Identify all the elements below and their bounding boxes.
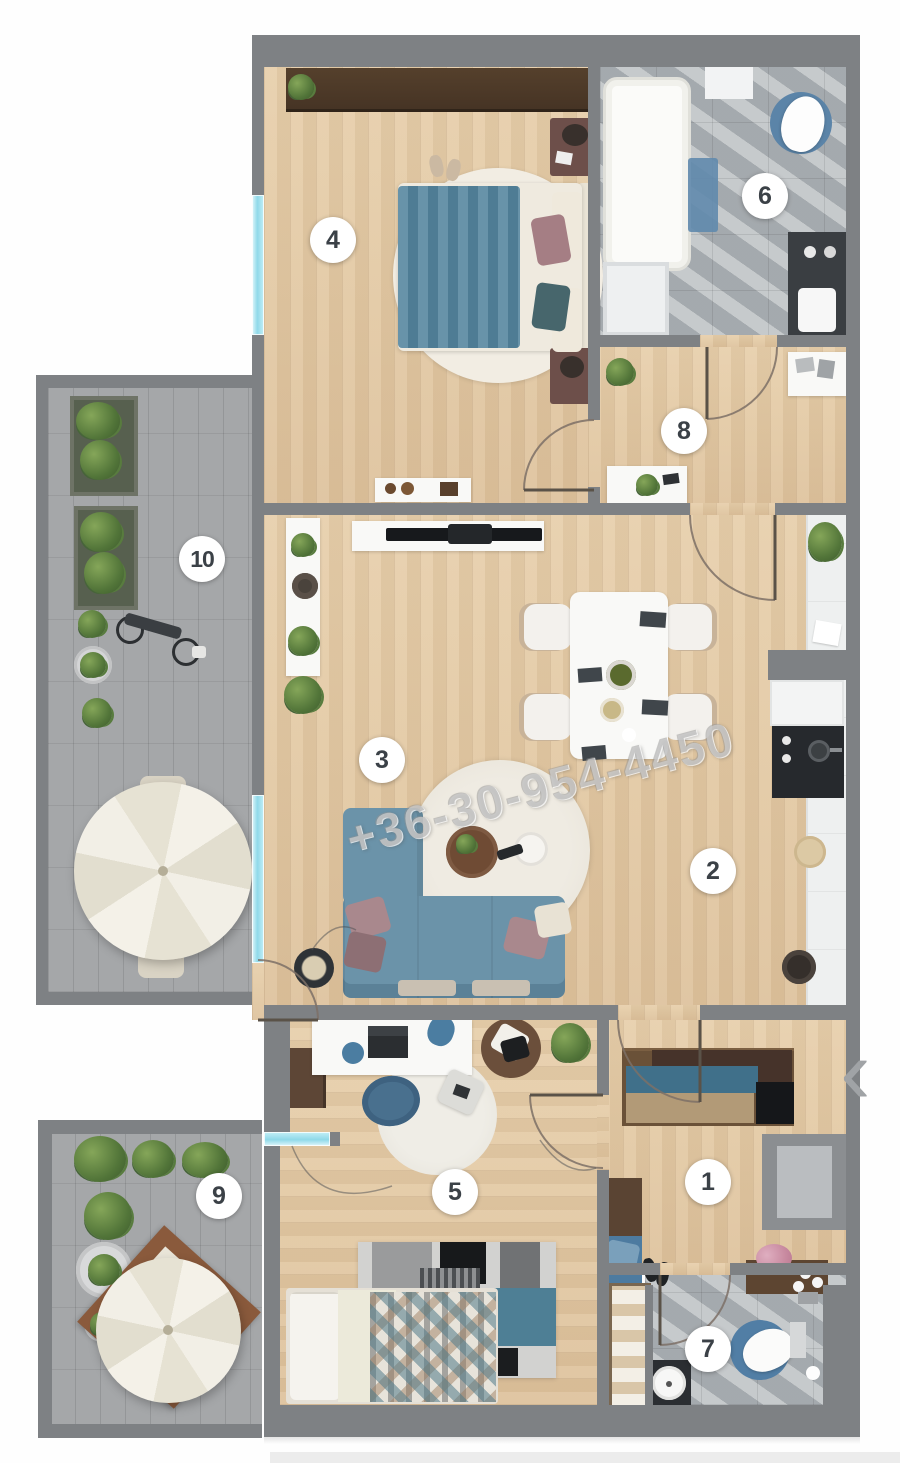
- wall: [36, 375, 48, 1005]
- decor-item: [385, 483, 396, 494]
- nightstand-book: [555, 151, 573, 166]
- placemat: [642, 699, 669, 715]
- decor-item: [798, 1292, 818, 1304]
- wall: [588, 487, 600, 503]
- window: [252, 795, 264, 963]
- room-badge-5: 5: [432, 1169, 478, 1215]
- vanity-item: [804, 246, 816, 258]
- placemat: [578, 667, 603, 683]
- wall: [330, 1132, 340, 1146]
- desk-lamp: [342, 1042, 364, 1064]
- patch-rug-block: [500, 1242, 540, 1288]
- entry-wardrobe-teal: [626, 1066, 758, 1093]
- vanity-item: [824, 246, 836, 258]
- plant-icon: [84, 552, 124, 594]
- room-badge-9: 9: [196, 1173, 242, 1219]
- cookbook: [812, 620, 841, 646]
- pot: [808, 740, 830, 762]
- plant-icon: [291, 533, 315, 557]
- knob: [782, 736, 791, 745]
- room-badge-3: 3: [359, 737, 405, 783]
- dining-chair: [664, 604, 712, 650]
- bicycle-basket: [192, 646, 206, 658]
- plant-icon: [288, 626, 318, 656]
- toilet-paper: [806, 1366, 820, 1380]
- umbrella-pole: [158, 866, 168, 876]
- wall: [597, 1020, 609, 1405]
- sofa-headrest: [398, 980, 456, 996]
- sofa-pillow: [343, 930, 388, 973]
- wall-shadow: [264, 1437, 860, 1444]
- knob: [782, 754, 791, 763]
- wall: [38, 1120, 262, 1134]
- wardrobe: [286, 68, 592, 112]
- plant-icon: [288, 74, 314, 100]
- soundbar: [448, 524, 492, 544]
- decor-bowl: [782, 950, 816, 984]
- plant-icon: [606, 358, 634, 386]
- plant-icon: [551, 1023, 589, 1063]
- floor-plan-canvas: 1 2 3 4 5 6 7 8 9 10 +36-30-954-4450 ‹: [0, 0, 900, 1463]
- fruit-bowl: [794, 836, 826, 868]
- nightstand-lamp: [562, 124, 588, 146]
- sofa-headrest: [472, 980, 530, 996]
- entry-wardrobe-shelf: [626, 1093, 754, 1123]
- wall: [36, 375, 252, 388]
- umbrella-pole: [163, 1325, 173, 1335]
- bathtub: [603, 77, 691, 271]
- picture-frame: [795, 357, 815, 373]
- sink: [798, 288, 836, 332]
- sofa-throw: [533, 901, 572, 938]
- plant-icon: [636, 474, 658, 496]
- wall: [38, 1424, 262, 1438]
- bed-pillow: [290, 1292, 340, 1400]
- laptop: [368, 1026, 408, 1058]
- plate: [793, 1281, 804, 1292]
- room-badge-8: 8: [661, 408, 707, 454]
- page-edge: [270, 1452, 900, 1463]
- door-opening: [700, 335, 777, 347]
- triangle-blanket: [370, 1292, 496, 1402]
- salad-bowl: [606, 660, 636, 690]
- plant-pot: [82, 698, 112, 728]
- dining-chair: [524, 604, 572, 650]
- wall: [264, 1146, 280, 1405]
- wall: [645, 1285, 653, 1405]
- decor-item: [401, 482, 414, 495]
- room-badge-4: 4: [310, 217, 356, 263]
- room-badge-10: 10: [179, 536, 225, 582]
- plant-icon: [80, 652, 106, 678]
- wall: [588, 67, 600, 420]
- chevron-left-icon[interactable]: ‹: [840, 1026, 871, 1118]
- wall: [823, 1285, 846, 1407]
- floor-lamp: [294, 948, 334, 988]
- pot-handle: [830, 748, 842, 752]
- plant-icon: [80, 440, 120, 480]
- door-opening: [618, 1005, 700, 1020]
- wall: [846, 35, 860, 1020]
- plate: [812, 1277, 823, 1288]
- bed-blanket: [398, 186, 520, 348]
- kitchen-wall-notch: [768, 650, 846, 680]
- plant-icon: [132, 1140, 174, 1178]
- room-badge-1: 1: [685, 1159, 731, 1205]
- dining-chair: [524, 694, 572, 740]
- nightstand-lamp: [560, 356, 584, 378]
- plant-icon: [74, 1136, 126, 1182]
- door-opening: [252, 958, 264, 1020]
- entry-closet-inner: [777, 1146, 832, 1218]
- decor-item: [440, 482, 458, 496]
- wall: [252, 35, 860, 67]
- wall: [264, 1405, 860, 1437]
- wall: [252, 1005, 846, 1020]
- entry-wardrobe-black: [756, 1082, 794, 1124]
- toilet-tank: [790, 1322, 806, 1358]
- wall: [252, 35, 264, 195]
- plant-icon: [80, 512, 122, 552]
- bath-cabinet: [603, 262, 669, 336]
- washer: [705, 67, 753, 99]
- plate: [600, 698, 624, 722]
- bath-mat: [688, 158, 718, 232]
- drain: [666, 1381, 672, 1387]
- window: [264, 1132, 330, 1146]
- wall: [264, 1020, 290, 1132]
- plant-icon: [284, 676, 322, 714]
- room-badge-7: 7: [685, 1326, 731, 1372]
- plant-icon: [76, 402, 120, 440]
- plant-icon: [808, 522, 842, 562]
- door-opening: [597, 1095, 609, 1170]
- wall: [252, 335, 264, 388]
- door-opening: [660, 1263, 730, 1275]
- plant-pot: [78, 610, 106, 638]
- plant-icon: [84, 1192, 132, 1240]
- window: [252, 195, 264, 335]
- wall: [38, 1120, 52, 1438]
- decor-bowl: [292, 573, 318, 599]
- door-opening: [690, 503, 775, 515]
- room-badge-6: 6: [742, 173, 788, 219]
- bed-cushion: [531, 282, 571, 332]
- kitchen-peninsula: [770, 680, 844, 726]
- placemat: [640, 611, 667, 628]
- room-badge-2: 2: [690, 848, 736, 894]
- picture-frame: [817, 359, 835, 379]
- wall: [36, 992, 252, 1005]
